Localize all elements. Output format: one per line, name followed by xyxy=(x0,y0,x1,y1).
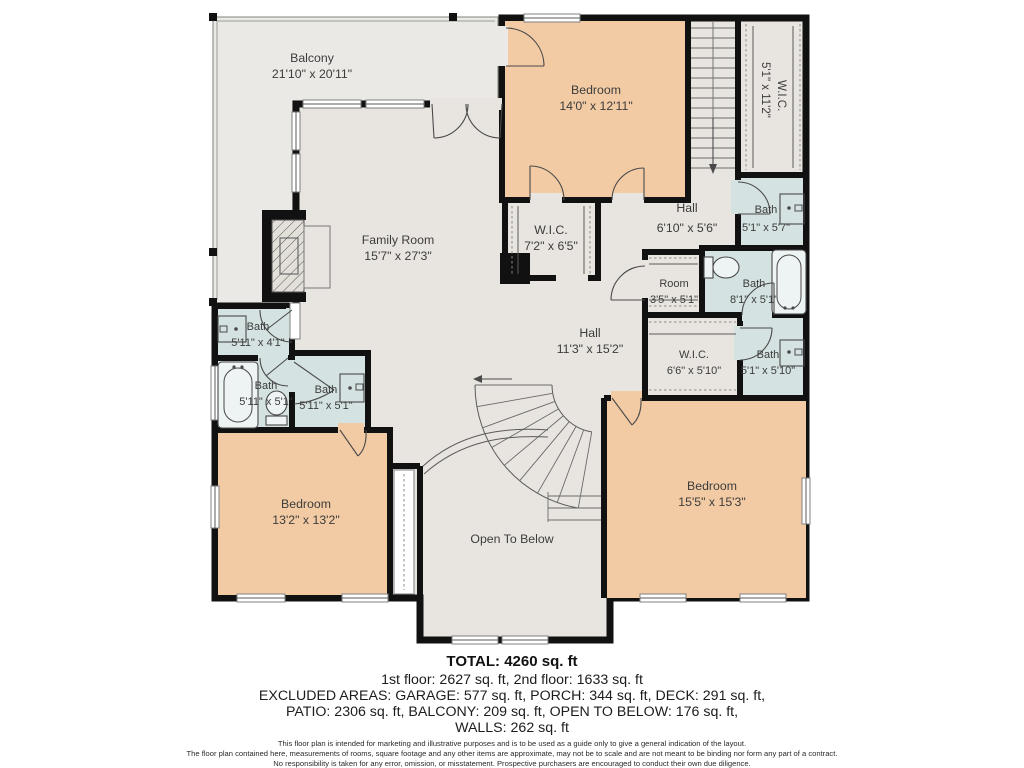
room-dims: 21'10" x 20'11" xyxy=(272,67,352,81)
total-area: TOTAL: 4260 sq. ft xyxy=(446,653,577,670)
room-label: Bedroom xyxy=(281,497,331,511)
room-dims: 5'1" x 11'2" xyxy=(759,62,771,118)
room-label: Family Room xyxy=(362,233,434,247)
room-dims: 5'11" x 5'1" xyxy=(299,400,352,412)
room-label: Bath xyxy=(255,380,278,392)
room-label: Hall xyxy=(676,201,697,215)
excluded-line1: EXCLUDED AREAS: GARAGE: 577 sq. ft, PORC… xyxy=(259,688,765,704)
room-dims: 5'1" x 5'10" xyxy=(741,365,795,377)
walls-line: WALLS: 262 sq. ft xyxy=(455,720,569,736)
toilet-icon xyxy=(266,416,287,425)
room-label: Open To Below xyxy=(470,532,553,546)
floor-plan-drawing: Balcony 21'10" x 20'11" Bedroom 14'0" x … xyxy=(0,0,1024,768)
room-label: W.I.C. xyxy=(679,349,709,361)
room-label: Bedroom xyxy=(571,83,621,97)
room-dims: 3'5" x 5'1" xyxy=(650,294,698,306)
toilet-icon xyxy=(704,257,713,278)
room-dims: 6'10" x 5'6" xyxy=(657,221,718,235)
excluded-line2: PATIO: 2306 sq. ft, BALCONY: 209 sq. ft,… xyxy=(286,704,738,720)
room-dims: 5'11" x 4'1" xyxy=(231,337,284,349)
room-dims: 6'6" x 5'10" xyxy=(667,365,721,377)
disclaimer-line: The floor plan contained here, measureme… xyxy=(187,749,838,758)
room-label: Bath xyxy=(315,384,338,396)
room-label: Balcony xyxy=(290,51,335,65)
room-dims: 15'7" x 27'3" xyxy=(364,249,431,263)
room-dims: 5'1" x 5'7" xyxy=(742,222,790,234)
room-dims: 14'0" x 12'11" xyxy=(559,99,632,113)
floor-plan-page: Balcony 21'10" x 20'11" Bedroom 14'0" x … xyxy=(0,0,1024,768)
room-label: Bath xyxy=(755,204,778,216)
room-label: Bedroom xyxy=(687,479,737,493)
room-label: Hall xyxy=(579,326,600,340)
disclaimer-line: This floor plan is intended for marketin… xyxy=(278,739,746,748)
room-label: Bath xyxy=(247,321,270,333)
room-label: Room xyxy=(659,278,688,290)
floors-line: 1st floor: 2627 sq. ft, 2nd floor: 1633 … xyxy=(381,672,643,688)
room-dims: 5'11" x 5'1" xyxy=(239,396,292,408)
room-label: Bath xyxy=(757,349,780,361)
linen-closet xyxy=(290,303,300,339)
room-label: W.I.C. xyxy=(775,80,787,111)
room-dims: 15'5" x 15'3" xyxy=(678,495,745,509)
room-dims: 8'1" x 5'1" xyxy=(730,294,778,306)
disclaimer-line: No responsibility is taken for any error… xyxy=(273,759,750,768)
room-dims: 11'3" x 15'2" xyxy=(557,342,624,356)
room-label: Bath xyxy=(743,278,766,290)
room-label: W.I.C. xyxy=(534,223,567,237)
room-dims: 13'2" x 13'2" xyxy=(272,513,339,527)
room-dims: 7'2" x 6'5" xyxy=(524,239,578,253)
